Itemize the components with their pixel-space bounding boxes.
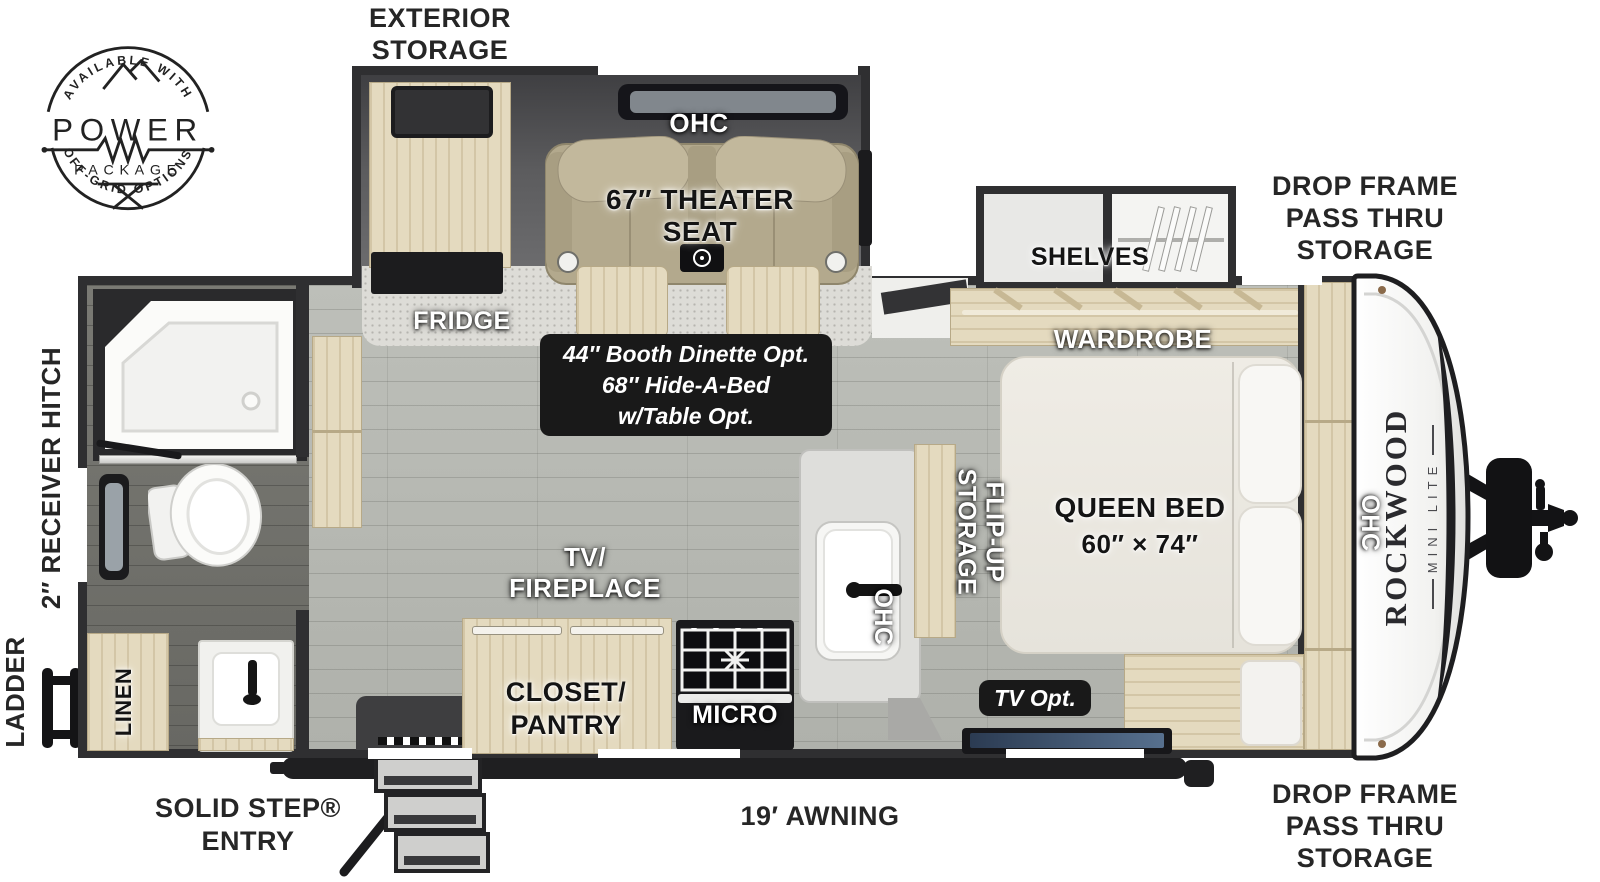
floorplan-canvas: AVAILABLE WITH OFF-GRID OPTIONS POWER PA… [0,0,1600,882]
theater-table-left [576,266,668,338]
bottom-wall-window-right [1006,749,1144,758]
pillow [1238,506,1302,646]
queen-bed-label: QUEEN BED 60″ × 74″ [1040,490,1240,562]
exterior-storage-label: EXTERIOR STORAGE [330,2,550,66]
awning-bracket-left [270,762,286,774]
ohc-kitchen-label: OHC [870,573,898,661]
wardrobe-rod [962,310,1298,315]
bench-cushion [1240,660,1302,746]
tv-screen [970,733,1164,748]
flip-up-storage-label: FLIP-UP STORAGE [953,445,1009,620]
bathroom-window-glass [105,483,123,571]
vanity-faucet-base [243,694,261,705]
cupholder-icon [826,252,846,272]
drop-frame-pass-thru-top-label: DROP FRAME PASS THRU STORAGE [1255,170,1475,266]
logo-arc-top: AVAILABLE WITH [60,53,195,102]
hitch-coupler [1548,504,1564,532]
svg-text:AVAILABLE WITH: AVAILABLE WITH [60,53,195,102]
slide-window-top [598,66,858,75]
ohc-bed-label: OHC [1357,480,1385,566]
solid-step-entry-label: SOLID STEP® ENTRY [128,792,368,858]
linen-label: LINEN [111,650,137,754]
ohc-slide-label: OHC [652,108,746,139]
propane-cover [1486,458,1532,578]
pillow [1238,364,1302,504]
shower [93,289,307,461]
jack-wheel [1535,543,1553,561]
ladder-label: LADDER [0,627,28,757]
bathroom-wall-lower [296,610,309,749]
flip-up-storage-panel [914,444,956,638]
toilet-icon [148,455,268,577]
hall-cabinet-divider [312,430,362,433]
logo-subword: PACKAGE [74,163,182,179]
shelves-label: SHELVES [1000,242,1180,272]
logo-word: POWER [52,112,204,147]
closet-pantry-label: CLOSET/ PANTRY [468,676,664,742]
shower-door-track [99,455,297,464]
left-wall-window [78,468,87,582]
entry-steps-icon [334,752,509,880]
tv-option-box: TV Opt. [979,680,1091,716]
brand-model: MINI LITE [1425,461,1440,574]
theater-seat-label: 67″ THEATER SEAT [570,184,830,248]
closet-rod-left [472,626,562,635]
tv-fireplace-label: TV/ FIREPLACE [490,542,680,604]
vanity-counter-edge [198,738,294,751]
bathroom-wall-upper [296,285,309,457]
bottom-wall-window-left [598,749,740,758]
awning-label: 19′ AWNING [710,800,930,832]
micro-label: MICRO [676,700,794,730]
drop-frame-pass-thru-bottom-label: DROP FRAME PASS THRU STORAGE [1255,778,1475,874]
receiver-hitch-label: 2″ RECEIVER HITCH [36,328,66,628]
vanity-faucet-icon [248,660,257,696]
shower-drain-icon [243,393,259,409]
range-grate-icon [680,628,790,692]
vanity-basin [212,652,280,726]
dinette-option-box: 44″ Booth Dinette Opt. 68″ Hide-A-Bed w/… [540,334,832,436]
top-wall-window [1242,276,1322,285]
storage-hatch [391,86,493,138]
cupholder-icon [558,252,578,272]
fridge-unit [371,252,503,294]
awning-bracket-right [1184,760,1214,787]
hitch-ball [1562,510,1578,526]
entry-door-opening [368,748,472,759]
closet-rod-right [570,626,664,635]
fridge-label: FRIDGE [402,306,522,336]
wardrobe-label: WARDROBE [1038,324,1228,355]
entry-threshold [378,737,462,745]
theater-table-right [726,266,820,338]
power-package-logo-icon: AVAILABLE WITH OFF-GRID OPTIONS POWER PA… [33,30,223,224]
